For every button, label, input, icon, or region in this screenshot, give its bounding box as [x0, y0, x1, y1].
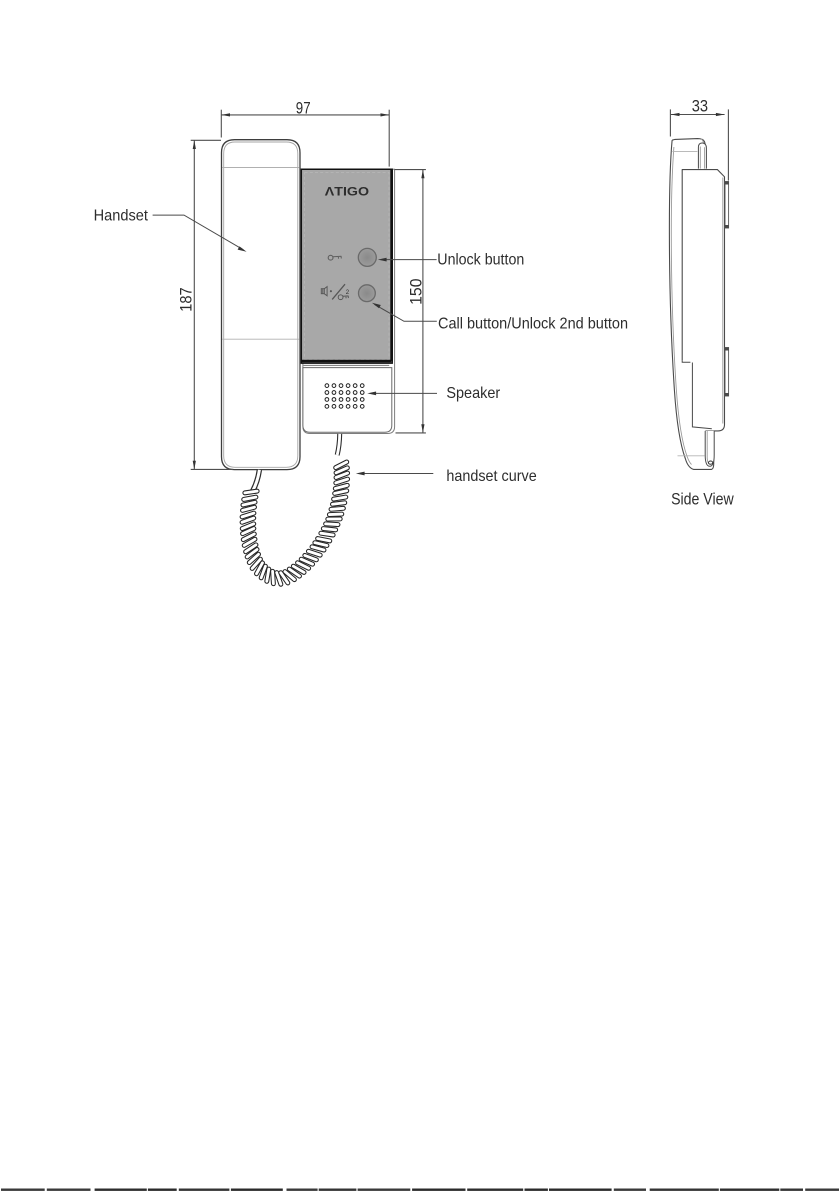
svg-text:Side View: Side View: [671, 489, 734, 508]
svg-text:Call button/Unlock 2nd button: Call button/Unlock 2nd button: [438, 316, 628, 333]
svg-text:handset curve: handset curve: [446, 468, 536, 485]
svg-text:Unlock button: Unlock button: [437, 252, 524, 269]
svg-text:97: 97: [296, 100, 311, 118]
svg-text:Speaker: Speaker: [446, 385, 500, 402]
svg-text:187: 187: [178, 287, 196, 311]
svg-text:Handset: Handset: [94, 207, 149, 224]
svg-text:150: 150: [407, 279, 425, 305]
svg-text:ΛTIGO: ΛTIGO: [325, 184, 370, 198]
svg-text:33: 33: [692, 98, 708, 116]
